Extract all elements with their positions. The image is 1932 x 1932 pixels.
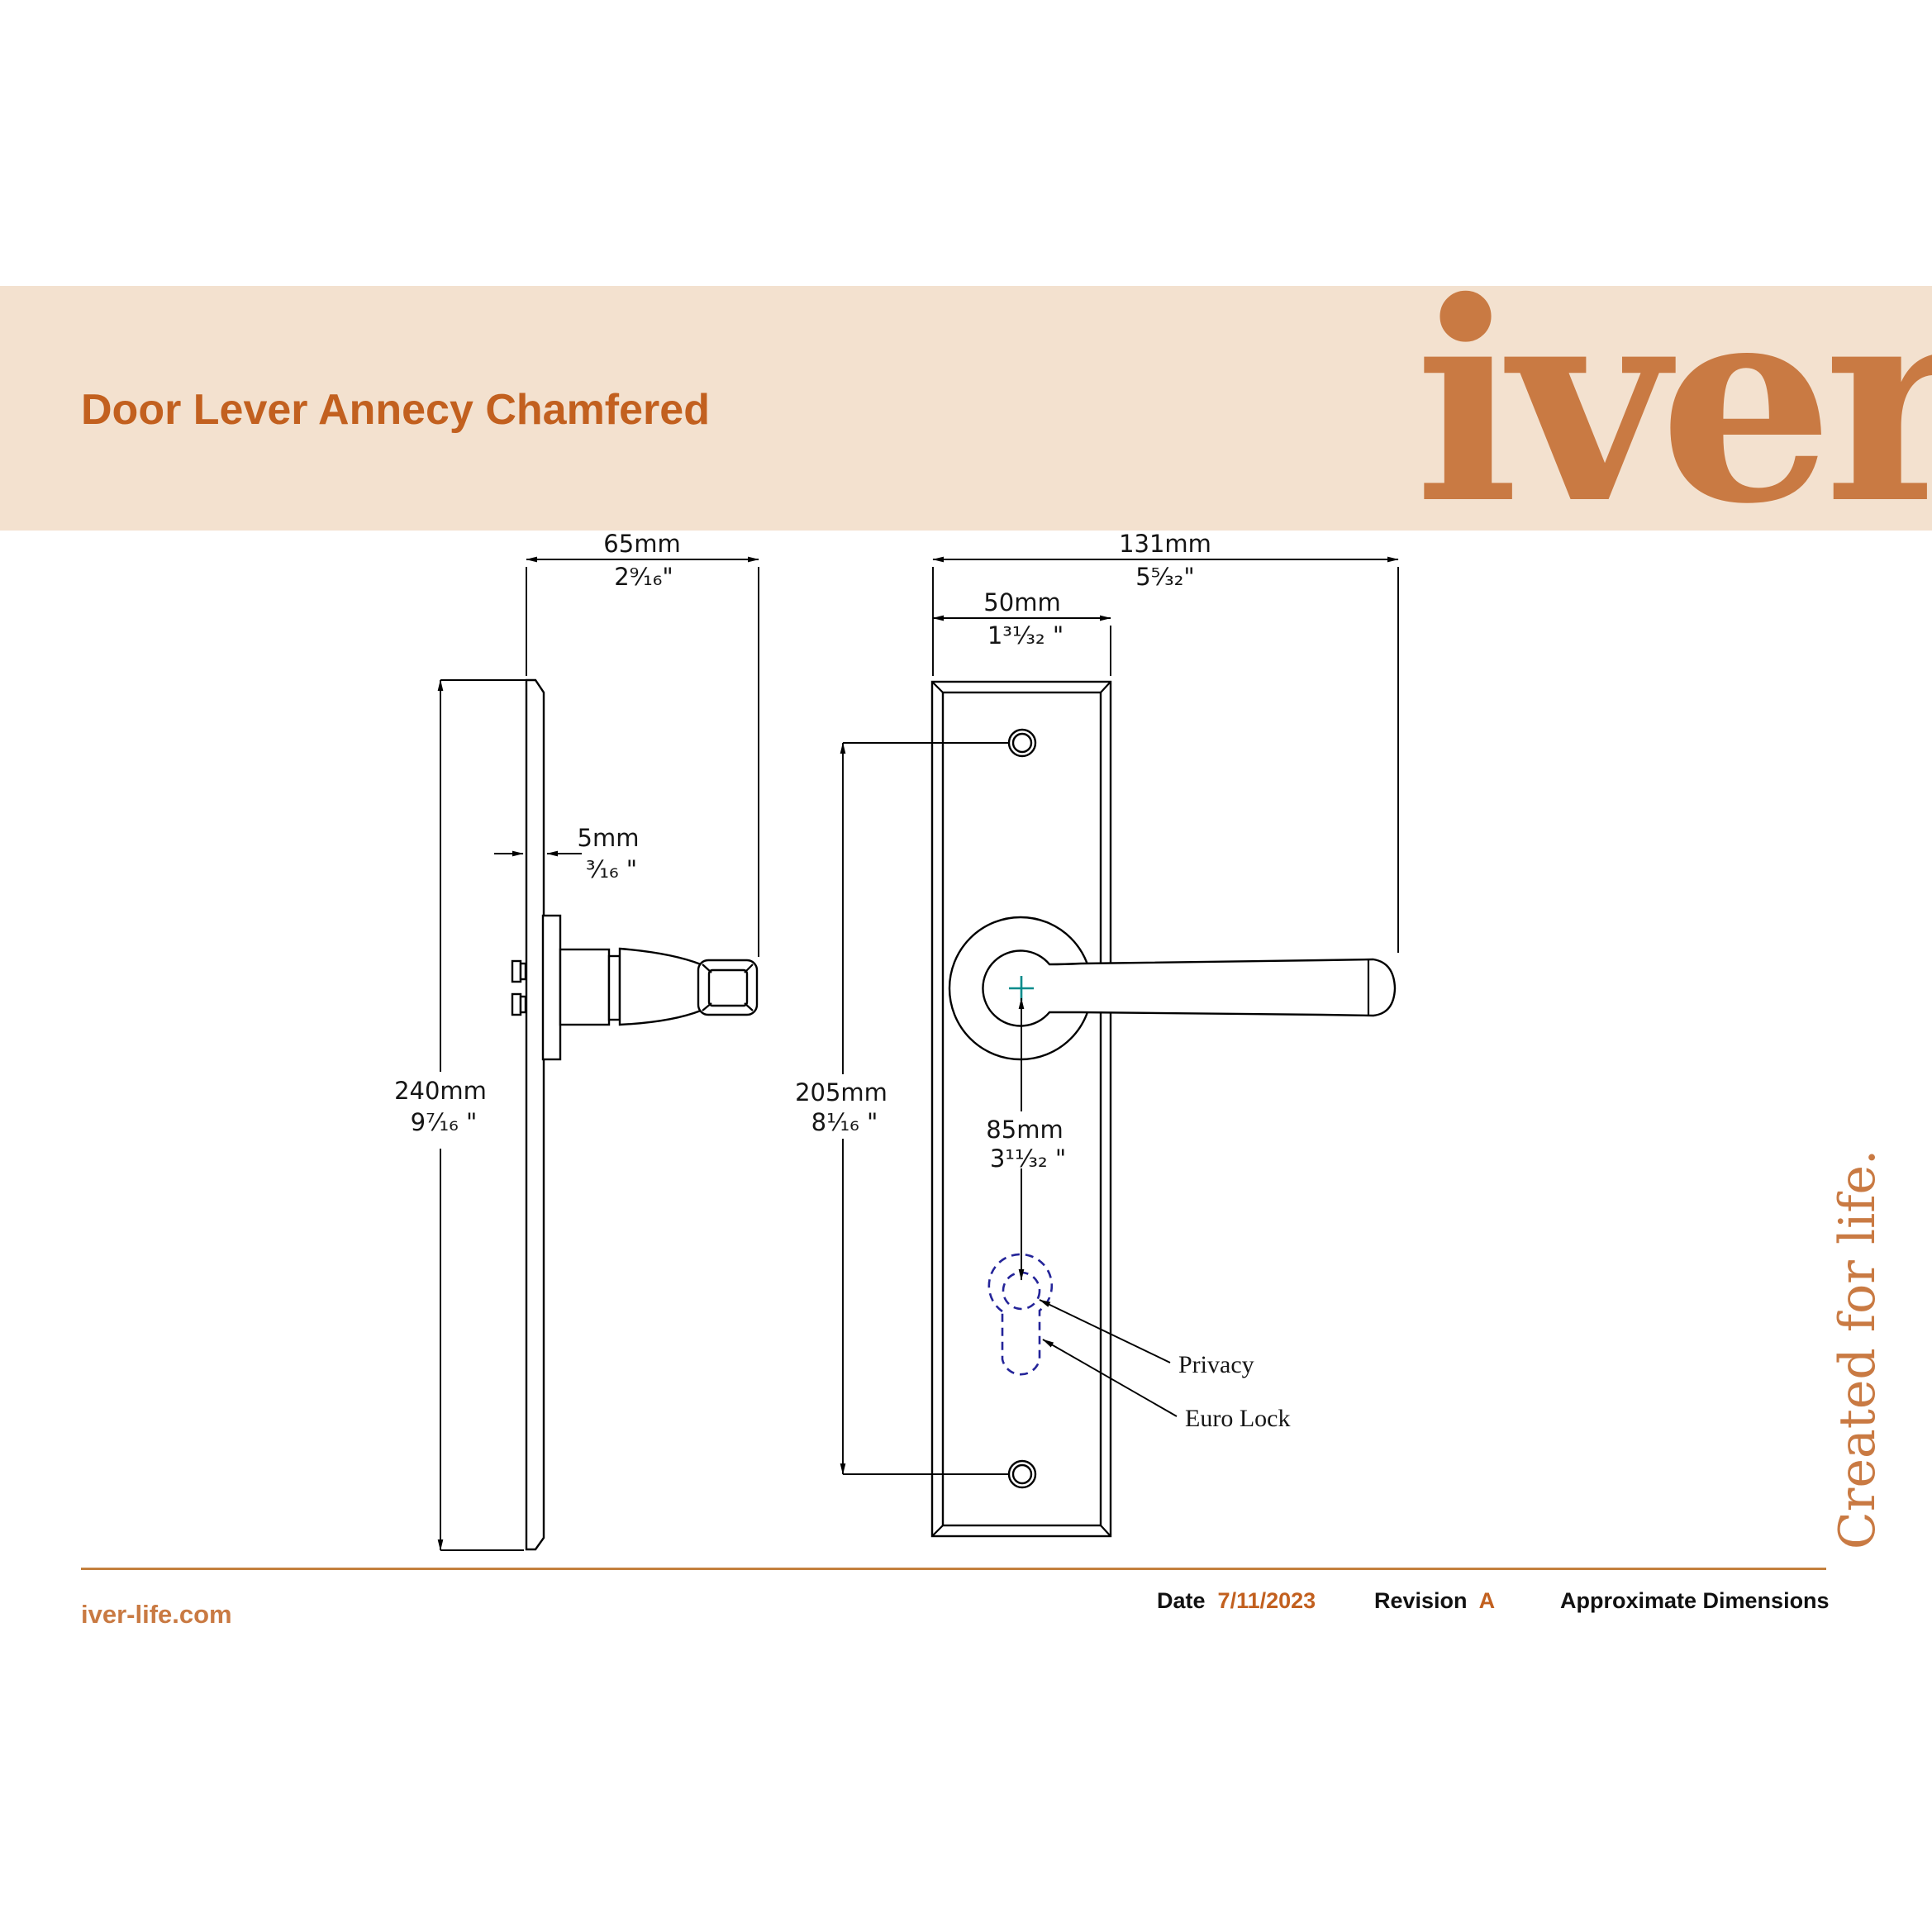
- front-view-drawing: 205mm 8¹⁄₁₆ " 85mm 3¹¹⁄₃₂ " 131mm 5⁵⁄₃₂": [795, 530, 1398, 1536]
- euro-lock-label: Euro Lock: [1185, 1405, 1290, 1432]
- dim-width-mm: 50mm: [983, 588, 1060, 616]
- dim-thickness-in: ³⁄₁₆ ": [586, 855, 637, 883]
- revision-value: A: [1479, 1588, 1496, 1613]
- dim-thickness: 5mm ³⁄₁₆ ": [494, 824, 639, 883]
- side-neck: [560, 949, 609, 1025]
- approximate-dimensions-note: Approximate Dimensions: [1560, 1588, 1830, 1614]
- dim-depth: 65mm 2⁹⁄₁₆": [526, 530, 759, 957]
- technical-drawing: 65mm 2⁹⁄₁₆" 5mm ³⁄₁₆ " 240mm 9⁷⁄₁₆ ": [0, 0, 1932, 1932]
- date-field: Date 7/11/2023: [1157, 1588, 1316, 1614]
- side-rose-hub: [543, 916, 560, 1059]
- date-label: Date: [1157, 1588, 1206, 1613]
- dim-width-in: 1³¹⁄₃₂ ": [987, 621, 1064, 650]
- dim-width: 50mm 1³¹⁄₃₂ ": [933, 588, 1111, 676]
- dim-lock-in: 3¹¹⁄₃₂ ": [990, 1144, 1066, 1173]
- dim-height-in: 9⁷⁄₁₆ ": [411, 1108, 478, 1136]
- screw-side-bottom-head: [521, 997, 526, 1012]
- revision-field: Revision A: [1374, 1588, 1495, 1614]
- date-value: 7/11/2023: [1218, 1588, 1316, 1613]
- side-backplate: [526, 680, 544, 1549]
- revision-label: Revision: [1374, 1588, 1468, 1613]
- footer-divider: [81, 1568, 1826, 1570]
- screw-side-top-head: [521, 964, 526, 979]
- side-knob-inner: [709, 970, 747, 1006]
- website-link[interactable]: iver-life.com: [81, 1600, 232, 1630]
- screw-side-top: [512, 961, 521, 982]
- side-grip: [620, 949, 701, 1025]
- screw-hole-bottom-inner: [1013, 1465, 1031, 1483]
- dim-centres-mm: 205mm: [795, 1078, 887, 1106]
- side-collar: [609, 956, 620, 1020]
- screw-side-bottom: [512, 994, 521, 1015]
- dim-depth-mm: 65mm: [603, 530, 680, 558]
- privacy-label: Privacy: [1178, 1351, 1254, 1378]
- dim-lock-mm: 85mm: [986, 1116, 1063, 1144]
- lever-handle: [983, 951, 1395, 1026]
- side-view-drawing: 65mm 2⁹⁄₁₆" 5mm ³⁄₁₆ " 240mm 9⁷⁄₁₆ ": [394, 530, 759, 1550]
- dim-depth-in: 2⁹⁄₁₆": [614, 563, 673, 591]
- dim-height: 240mm 9⁷⁄₁₆ ": [394, 680, 526, 1550]
- dim-projection-in: 5⁵⁄₃₂": [1135, 563, 1195, 591]
- spec-sheet-page: Door Lever Annecy Chamfered iver Created…: [0, 0, 1932, 1932]
- screw-hole-top-inner: [1013, 734, 1031, 752]
- dim-thickness-mm: 5mm: [578, 824, 640, 852]
- dim-centres-in: 8¹⁄₁₆ ": [811, 1108, 878, 1136]
- dim-projection-mm: 131mm: [1119, 530, 1211, 558]
- dim-height-mm: 240mm: [394, 1077, 487, 1105]
